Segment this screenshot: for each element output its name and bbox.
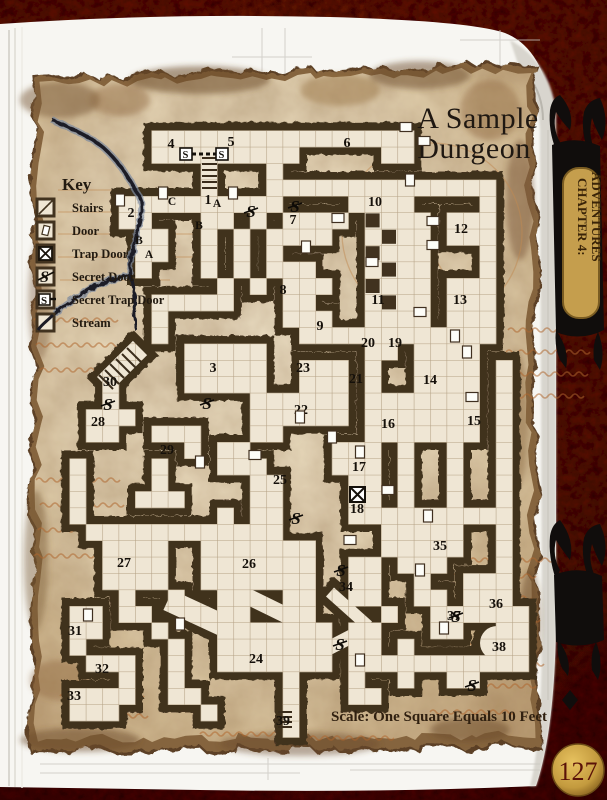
svg-text:14: 14 [423, 373, 437, 388]
svg-text:30: 30 [103, 375, 117, 390]
svg-text:2: 2 [128, 206, 135, 221]
svg-text:23: 23 [296, 361, 310, 376]
svg-text:Scale: One Square Equals 10 Fe: Scale: One Square Equals 10 Feet [331, 709, 547, 725]
svg-text:Dungeon: Dungeon [417, 132, 530, 165]
svg-text:24: 24 [249, 652, 263, 667]
svg-text:6: 6 [344, 136, 351, 151]
svg-text:15: 15 [467, 414, 481, 429]
svg-text:28: 28 [91, 415, 105, 430]
svg-text:25: 25 [273, 473, 287, 488]
svg-text:A: A [145, 249, 154, 261]
svg-text:A: A [213, 198, 222, 210]
svg-text:1: 1 [205, 193, 212, 208]
svg-text:19: 19 [388, 336, 402, 351]
svg-text:4: 4 [168, 137, 175, 152]
svg-text:S: S [183, 150, 189, 161]
svg-text:32: 32 [95, 662, 109, 677]
svg-text:C: C [168, 196, 176, 208]
svg-text:18: 18 [350, 502, 364, 517]
svg-text:ADVENTURES: ADVENTURES [589, 172, 604, 262]
svg-text:26: 26 [242, 557, 256, 572]
svg-text:20: 20 [361, 336, 375, 351]
svg-text:Door: Door [72, 224, 100, 238]
svg-text:21: 21 [349, 372, 363, 387]
svg-text:S: S [41, 295, 47, 307]
svg-text:31: 31 [68, 624, 82, 639]
svg-text:13: 13 [453, 293, 467, 308]
svg-text:B: B [135, 235, 143, 247]
svg-text:Secret Trap Door: Secret Trap Door [72, 293, 165, 307]
svg-text:Stream: Stream [72, 316, 111, 330]
svg-text:11: 11 [371, 293, 384, 308]
svg-text:B: B [195, 220, 203, 232]
svg-text:9: 9 [317, 319, 324, 334]
svg-text:Trap Door: Trap Door [72, 247, 129, 261]
svg-text:Stairs: Stairs [72, 201, 103, 215]
svg-text:39: 39 [276, 714, 290, 729]
svg-text:33: 33 [67, 689, 81, 704]
svg-text:3: 3 [210, 361, 217, 376]
svg-text:35: 35 [433, 539, 447, 554]
svg-text:CHAPTER 4:: CHAPTER 4: [575, 178, 590, 256]
svg-text:S: S [219, 150, 225, 161]
svg-text:16: 16 [381, 417, 395, 432]
svg-text:27: 27 [117, 556, 131, 571]
svg-text:34: 34 [339, 580, 353, 595]
svg-text:Key: Key [62, 175, 92, 194]
svg-text:A Sample: A Sample [417, 102, 539, 135]
svg-text:36: 36 [489, 597, 503, 612]
svg-text:127: 127 [559, 757, 598, 786]
svg-text:38: 38 [492, 640, 506, 655]
svg-text:8: 8 [280, 283, 287, 298]
svg-text:29: 29 [160, 443, 174, 458]
svg-text:Secret Door: Secret Door [72, 270, 136, 284]
svg-text:12: 12 [454, 222, 468, 237]
svg-text:10: 10 [368, 195, 382, 210]
svg-text:17: 17 [352, 460, 366, 475]
